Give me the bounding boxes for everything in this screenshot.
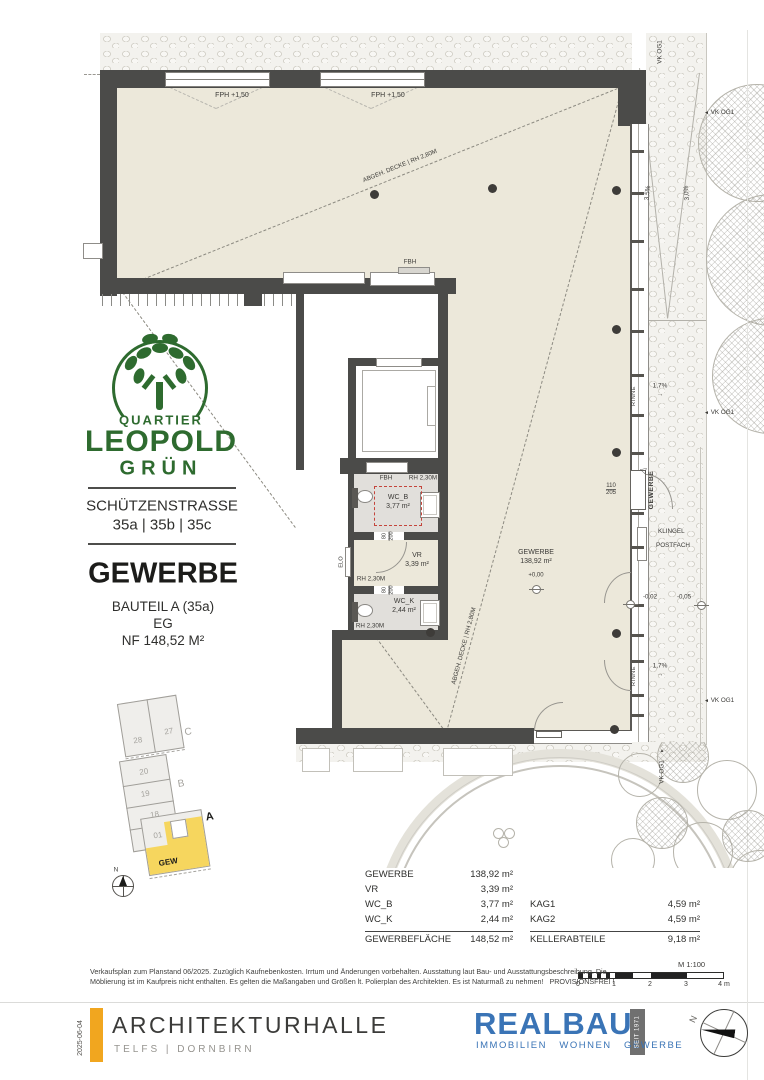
column [370,190,379,199]
door-height: 200 [389,585,396,594]
unit-part: BAUTEIL A (35a) [112,599,214,615]
row-value: 4,59 m² [668,914,700,925]
column [426,628,435,637]
entrance-label: GEWERBE [648,471,656,510]
window-height-label: FPH +1,50 [371,92,405,100]
arrow-left-icon: ◄ [704,410,709,416]
room-area: 3,77 m² [386,503,410,511]
klingel-label: KLINGEL [658,528,685,535]
floor-gewerbe-right [446,282,630,732]
level-marker-line [694,605,709,606]
logo-leopold: LEOPOLD [85,425,237,460]
row-value: 4,59 m² [668,899,700,910]
disclaimer-line: Möblierung ist im Kaufpreis nicht enthal… [90,978,615,986]
table-row: WC_K2,44 m² [365,914,513,925]
north-label: N [114,866,119,873]
vk-og1-label: ◄ VK OG1 [704,109,734,117]
corner-pillar [618,70,646,126]
elevator-wall [348,358,356,466]
arrow-left-icon: ◄ [704,110,709,116]
slope-arrow-icon: → [657,391,664,399]
scale-tick: 2 [648,981,652,989]
room-height-label: RH 2,30M [409,474,437,481]
fbh-label: FBH [380,474,393,481]
wall-stub [244,294,262,306]
studio-accent-bar [90,1008,103,1062]
seit-label: SEIT 1971 [635,1016,642,1049]
slope-label: 3,0% [683,185,692,201]
partition-wall [352,532,374,540]
column [612,325,621,334]
washbasin-inner [423,495,437,515]
mullion [631,192,644,195]
mullion [631,288,644,291]
north-label: N [687,1014,699,1024]
table-row: GEWERBE138,92 m² [365,869,513,880]
facade-stub [83,243,103,259]
tree-trunk [156,382,163,410]
mullion [631,714,644,717]
vk-og1-label: VK OG1 [658,760,665,783]
room-height-label: RH 2,30M [356,622,384,629]
door-height: 205 [606,490,616,497]
row-label: VR [365,884,378,895]
divider [88,543,236,545]
tree [698,84,764,202]
row-label: KELLERABTEILE [530,934,606,945]
scale-tick: 4 m [718,981,730,989]
slope-label: 1,7% [653,382,668,389]
window [165,72,270,87]
vk-text: VK OG1 [711,409,734,416]
slope-arrow-icon: → [657,671,664,679]
toilet [357,604,373,617]
slope-label: 3,5% [644,185,653,201]
vk-text: VK OG1 [711,697,734,704]
wall-opening [366,462,408,473]
gew-notch [170,819,189,839]
mullion [631,330,644,333]
room-area: 2,44 m² [392,607,416,615]
site-plan: 28 27 C 20 19 18 B 01 A GEW N [88,682,238,907]
entrance-door [630,470,646,510]
mullion [631,240,644,243]
row-value: 138,92 m² [470,869,513,880]
vk-og1-label: ◄ VK OG1 [704,409,734,417]
vk-og1-label: VK OG1 [656,40,663,63]
plan-date: 2025-06-04 [77,1020,85,1056]
row-label: GEWERBE [365,869,414,880]
compass-line [112,886,134,887]
address-numbers: 35a | 35b | 35c [113,516,212,533]
core-wall [438,285,448,474]
vk-og1-label: ◄ VK OG1 [704,697,734,705]
room-name: VR [412,552,422,560]
column [612,629,621,638]
core-niche [296,640,332,728]
scale-seg-black [651,973,687,978]
room-name: WC_K [394,598,414,606]
level-label: +0,00 [528,573,543,580]
unit-19: 19 [140,789,150,799]
arrow-left-icon: ◄ [704,698,709,704]
shrub [498,837,509,848]
scale-seg-black [615,973,633,978]
column [610,725,619,734]
column [612,186,621,195]
level-marker-line [529,589,544,590]
door-width: 110 [606,483,616,489]
sales-floorplan-page: { "plan": { "fph": "FPH +1,50", "ceiling… [0,0,764,1080]
wall-opening [370,272,435,286]
scale-label: M 1:100 [678,961,705,970]
mullion [631,546,644,549]
address-street: SCHÜTZENSTRASSE [86,497,238,514]
scale-tick: 3 [684,981,688,989]
room-name: GEWERBE [518,549,554,557]
mullion [631,660,644,663]
rinne-label: RINNE [631,666,637,686]
washbasin-inner [423,603,437,623]
floor-gewerbe-lower [342,640,446,732]
fbh-manifold [398,267,430,274]
mullion [631,694,644,697]
wall-left [100,70,117,296]
divider [88,487,236,489]
slope-label: 1,7% [653,662,668,669]
window [320,72,425,87]
tree [618,753,662,797]
row-value: 3,77 m² [481,899,513,910]
vk-text: VK OG1 [711,109,734,116]
wall-opening [283,272,365,284]
tree-leaf [152,343,168,353]
partition-wall [404,586,442,594]
level-label: -0,02 [643,593,657,600]
table-total-row: KELLERABTEILE9,18 m² [530,931,700,945]
row-label: GEWERBEFLÄCHE [365,934,451,945]
row-value: 3,39 m² [481,884,513,895]
fbh-label: FBH [404,258,417,265]
partition-wall [404,532,442,540]
landscaping [290,742,764,868]
mullion [631,374,644,377]
level-label: -0,05 [677,593,691,600]
room-area: 138,92 m² [520,558,552,566]
door-height: 200 [389,531,396,540]
table-row: VR3,39 m² [365,884,513,895]
lower-left-wall [332,630,342,736]
mullion [631,452,644,455]
partition-wall [352,586,374,594]
column [488,184,497,193]
logo-gruen: GRÜN [120,458,203,481]
row-value: 148,52 m² [470,934,513,945]
table-row: WC_B3,77 m² [365,899,513,910]
unit-27: 27 [164,726,174,736]
row-label: WC_K [365,914,392,925]
electrical-panel [345,547,351,577]
toilet-tank [352,602,358,622]
row-value: 2,44 m² [481,914,513,925]
table-total-row: GEWERBEFLÄCHE148,52 m² [365,931,513,945]
building-b-label: B [177,778,185,790]
toilet [357,490,373,503]
step-pad [443,748,513,776]
door-dimension: 110205 [606,483,616,497]
elevator-door [376,358,422,367]
elevator-car [362,370,436,452]
mullion [631,150,644,153]
rinne-label: RINNE [631,386,637,406]
row-label: WC_B [365,899,392,910]
page-edge-line [747,30,748,1080]
mullion [631,634,644,637]
elevator-counterweight [427,386,436,426]
window-height-label: FPH +1,50 [215,92,249,100]
building-c-label: C [184,726,193,738]
unit-floor: EG [153,616,173,632]
level-marker-line [623,604,638,605]
disclaimer-line: Verkaufsplan zum Planstand 06/2025. Zuzü… [90,968,607,976]
table-row: KAG14,59 m² [530,899,700,910]
room-area: 3,39 m² [405,561,429,569]
realbau-logo: REALBAU [474,1006,633,1042]
elo-label: ELO [339,556,346,568]
mullion [631,512,644,515]
core-wall [296,294,304,470]
garden-edge-line [700,447,701,745]
step-pad [302,748,330,772]
footer-divider [0,1002,764,1003]
room-height-label: RH 2,30M [357,575,385,582]
unit-20: 20 [139,767,149,777]
row-label: KAG2 [530,914,555,925]
unit-28: 28 [133,735,143,745]
step-pad [353,748,403,772]
property-dash-line [84,74,100,75]
building-a-label: A [205,810,215,823]
column [612,448,621,457]
insulation-hatch [102,294,300,306]
unit-title: GEWERBE [88,557,238,590]
bell-mailbox [637,527,647,561]
toilet-tank [352,488,358,508]
room-name: WC_B [388,494,408,502]
unit-nf: NF 148,52 M² [122,633,205,649]
door-dimension: 80200 [383,585,396,594]
row-label: KAG1 [530,899,555,910]
mullion [631,414,644,417]
arrow-up-icon: ▲ [660,749,665,755]
unit-01: 01 [153,830,163,840]
studio-name: ARCHITEKTURHALLE [112,1012,388,1038]
studio-sub: TELFS | DORNBIRN [114,1044,255,1056]
row-value: 9,18 m² [668,934,700,945]
tree [706,194,764,326]
table-row: KAG24,59 m² [530,914,700,925]
realbau-sub: IMMOBILIEN WOHNEN GEWERBE [476,1041,683,1052]
door-dimension: 80200 [383,531,396,540]
terrace-door [536,731,562,738]
glass-facade [630,124,649,742]
site-plan-group: 28 27 C 20 19 18 B 01 A GEW [71,672,254,918]
postfach-label: POSTFACH [656,542,690,549]
